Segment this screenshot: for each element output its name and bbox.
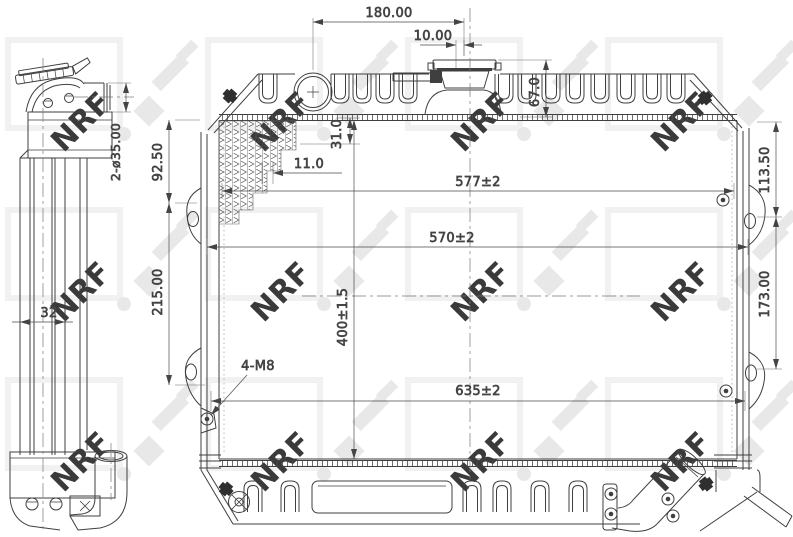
dim-label-right-lower-height: 173.00: [758, 270, 773, 317]
dim-label-mounting-bolts: 4-M8: [241, 359, 275, 374]
dim-label-core-depth: 32: [40, 306, 57, 321]
radiator-technical-drawing: NRF: [0, 0, 793, 537]
dim-label-overall-width: 635±2: [455, 384, 500, 399]
dim-label-core-width-lower: 570±2: [429, 231, 474, 246]
dim-label-filler-to-cap: 180.00: [365, 6, 412, 21]
dim-label-right-upper-height: 113.50: [758, 146, 773, 193]
dim-label-top-tank-height: 67.0: [528, 77, 543, 107]
dim-label-core-width-upper: 577±2: [455, 175, 500, 190]
dim-label-fin-inset: 11.0: [294, 157, 324, 172]
dim-label-left-upper-height: 92.50: [151, 143, 166, 182]
dim-label-pipe-diameter: 2-ø35.00: [108, 123, 123, 181]
dim-label-header-depth: 31.0: [330, 119, 345, 149]
dim-label-core-height: 400±1.5: [336, 288, 351, 346]
dim-label-left-lower-height: 215.00: [151, 268, 166, 315]
dim-label-cap-offset: 10.00: [414, 29, 453, 44]
